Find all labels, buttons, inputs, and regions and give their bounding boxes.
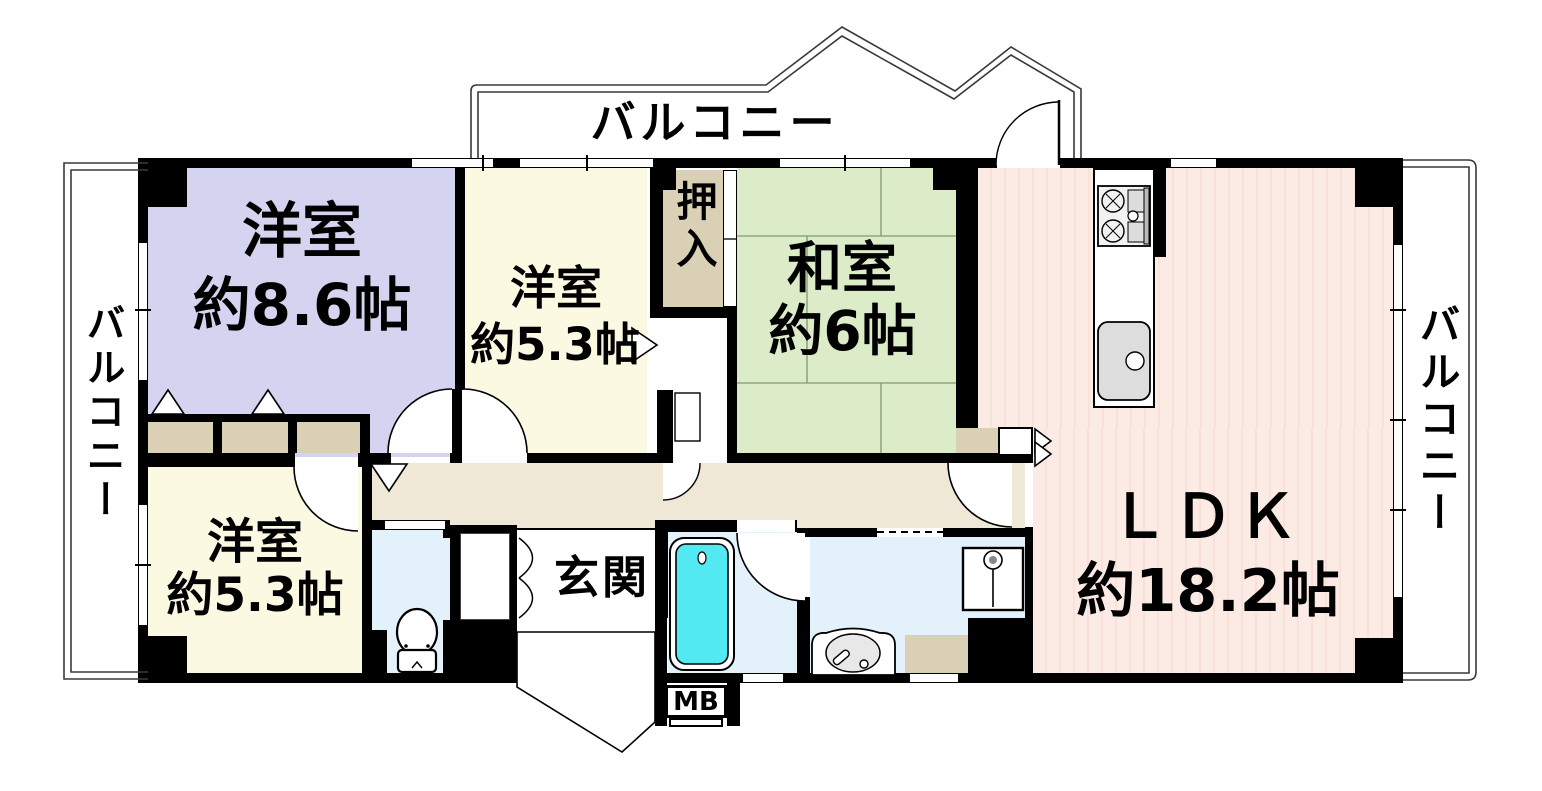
label-ldk-size: 約18.2帖 <box>1048 561 1368 620</box>
label-oshiire: 押入 <box>672 180 713 274</box>
meter-box: MB <box>665 685 727 718</box>
label-genkan: 玄関 <box>552 555 652 600</box>
label-ldk-name: ＬＤＫ <box>1055 487 1355 547</box>
door-arc-western2 <box>463 389 527 453</box>
label-meter-box: MB <box>673 687 719 717</box>
shoe-cabinet-bifold-icon <box>519 538 533 618</box>
door-arc-western1 <box>388 389 452 453</box>
toilet-icon <box>397 609 437 672</box>
washing-machine-icon <box>963 548 1023 610</box>
closet-door-triangles <box>152 390 284 414</box>
ldk-closet-chevrons <box>1035 429 1051 466</box>
door-arc-bath <box>737 533 805 601</box>
label-japanese-name: 和室 <box>737 241 947 296</box>
corridor-door-panel <box>675 393 700 441</box>
door-mark-down <box>371 464 407 491</box>
washbasin-icon <box>812 629 895 676</box>
kitchen-sink-icon <box>1098 322 1150 400</box>
label-western2-name: 洋室 <box>465 265 647 311</box>
meter-box-lower <box>669 718 723 727</box>
label-western1-name: 洋室 <box>152 202 452 262</box>
bathtub-icon <box>670 538 734 670</box>
door-arc-corridor <box>663 463 700 500</box>
label-balcony-top: バルコニー <box>565 100 865 145</box>
floor-plan: 洋室 約8.6帖 洋室 約5.3帖 押入 和室 約6帖 ＬＤＫ 約18.2帖 洋… <box>0 0 1542 791</box>
door-arc-ldk <box>948 463 1012 527</box>
label-western2-size: 約5.3帖 <box>455 322 655 367</box>
door-arc-balcony <box>996 100 1059 165</box>
label-western3-size: 約5.3帖 <box>148 572 362 619</box>
label-balcony-left: バルコニー <box>83 303 122 523</box>
label-japanese-size: 約6帖 <box>730 304 955 359</box>
label-western3-name: 洋室 <box>155 518 355 566</box>
entrance-porch <box>517 632 655 752</box>
label-western1-size: 約8.6帖 <box>152 276 452 334</box>
label-balcony-right: バルコニー <box>1415 303 1456 538</box>
stove-icon <box>1098 186 1150 246</box>
